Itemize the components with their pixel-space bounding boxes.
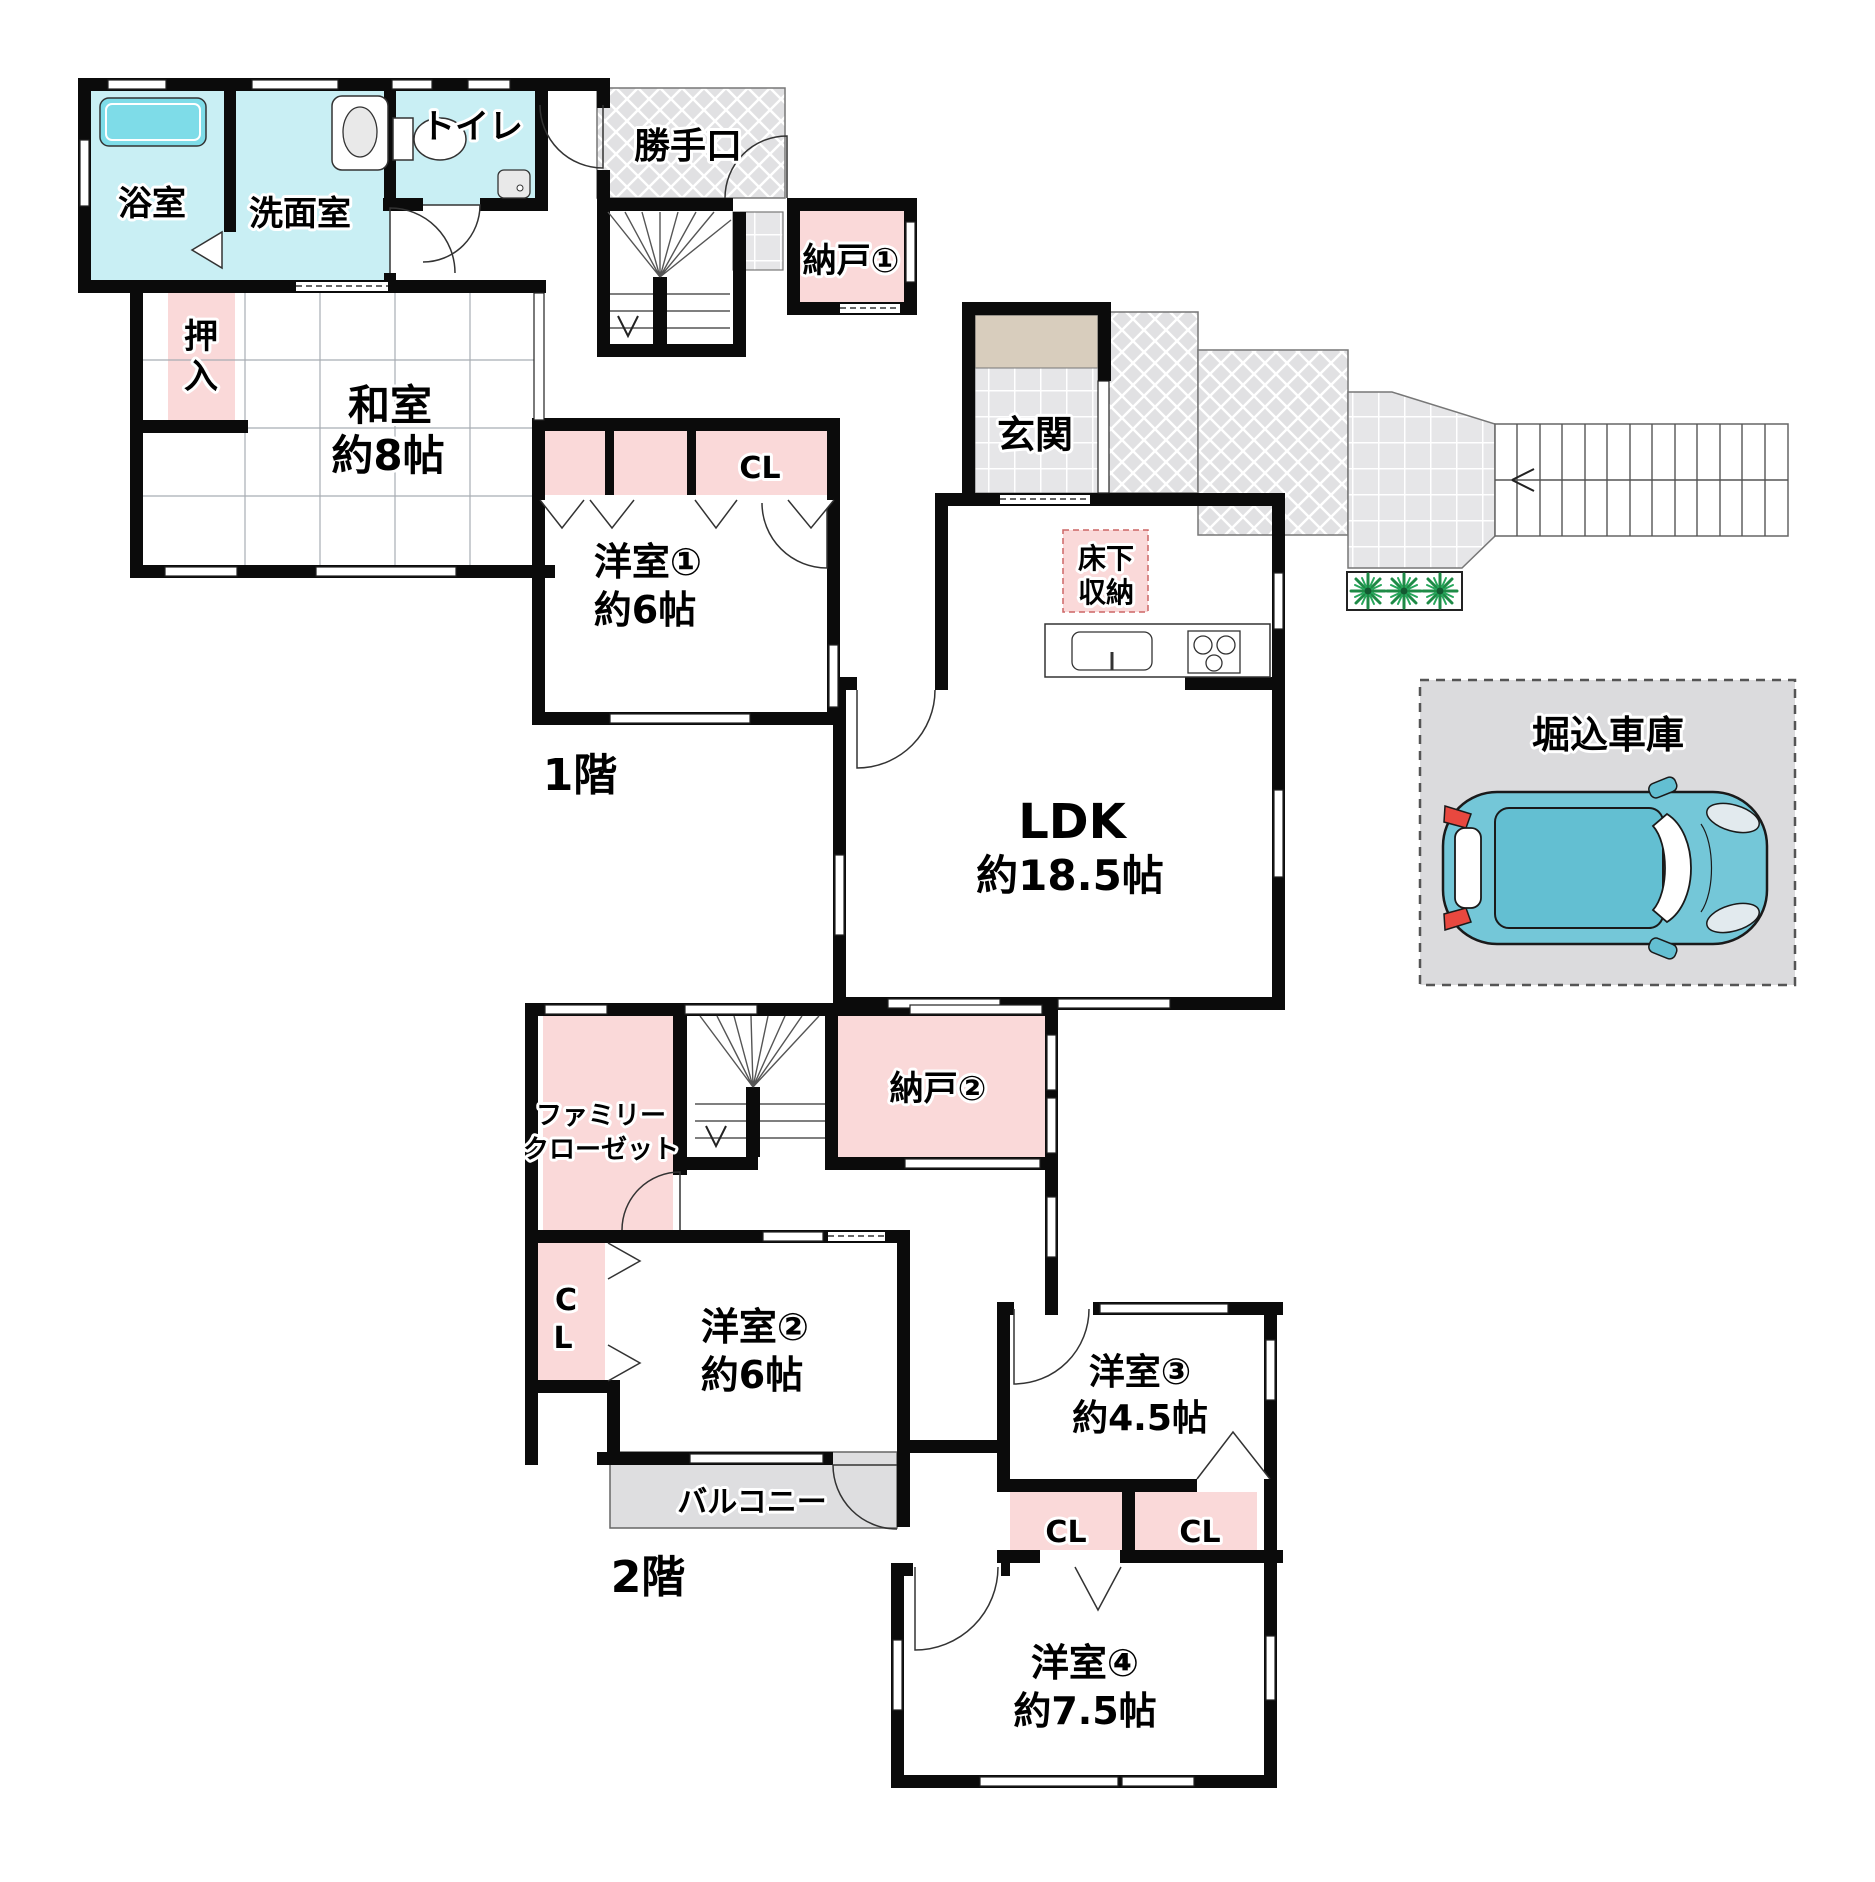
car-top-view (1443, 775, 1767, 960)
oshiire-label-2: 入 (184, 357, 218, 397)
stairs-1f (608, 212, 731, 336)
nando2-label: 納戸② (890, 1069, 987, 1109)
yoshitsu3-size: 約4.5帖 (1072, 1398, 1208, 1439)
planter (1347, 572, 1462, 610)
bathtub-icon (100, 98, 206, 146)
toilet-label: トイレ (421, 107, 523, 147)
closet-right-label: CL (1179, 1515, 1220, 1550)
yoshitsu2-label: 洋室② (701, 1305, 809, 1349)
closet-left-label: CL (1045, 1515, 1086, 1550)
toilet-corner-sink-icon (498, 170, 530, 198)
washroom-label: 洗面室 (249, 194, 351, 234)
closet-1f-label: CL (739, 451, 780, 486)
yoshitsu1-size: 約6帖 (594, 588, 696, 632)
yoshitsu3-label: 洋室③ (1089, 1352, 1191, 1393)
underfloor-label-1: 床下 (1078, 542, 1134, 575)
yoshitsu1-label: 洋室① (594, 540, 702, 584)
genkan-step (975, 315, 1098, 493)
floor1-label: 1階 (543, 750, 618, 801)
floor-plan-page: 浴室 洗面室 トイレ 押 入 和室 約8帖 勝手口 納戸① 玄関 CL 床下 収… (0, 0, 1875, 1882)
kitchen-counter-icon (1045, 624, 1270, 677)
katteguchi-label: 勝手口 (634, 126, 742, 167)
washroom-sink-icon (332, 96, 388, 170)
balcony-label: バルコニー (677, 1485, 826, 1520)
ldk-label: LDK (1018, 794, 1127, 850)
bath-label: 浴室 (118, 184, 186, 224)
genkan-label: 玄関 (997, 413, 1073, 457)
yoshitsu4-size: 約7.5帖 (1013, 1689, 1156, 1733)
entrance-porch (1107, 312, 1495, 568)
underfloor-label-2: 収納 (1078, 576, 1134, 609)
closet-2f-l: L (553, 1321, 572, 1356)
garage-label: 堀込車庫 (1532, 713, 1684, 757)
yoshitsu4-label: 洋室④ (1031, 1641, 1139, 1685)
washitsu-size: 約8帖 (331, 431, 444, 480)
floor2-label: 2階 (611, 1552, 686, 1603)
closet-2f-c: C (555, 1283, 577, 1318)
family-closet-label-2: クローゼット (523, 1135, 679, 1165)
family-closet-label-1: ファミリー (536, 1101, 666, 1131)
floor-plan-svg: 浴室 洗面室 トイレ 押 入 和室 約8帖 勝手口 納戸① 玄関 CL 床下 収… (0, 0, 1875, 1882)
labels-garage: 堀込車庫 (1532, 713, 1684, 757)
washitsu-label: 和室 (348, 381, 432, 430)
ldk-size: 約18.5帖 (976, 851, 1164, 900)
nando1-label: 納戸① (803, 241, 900, 281)
oshiire-label-1: 押 (184, 317, 218, 357)
yoshitsu2-size: 約6帖 (701, 1353, 803, 1397)
outdoor-stairs (1495, 424, 1788, 536)
